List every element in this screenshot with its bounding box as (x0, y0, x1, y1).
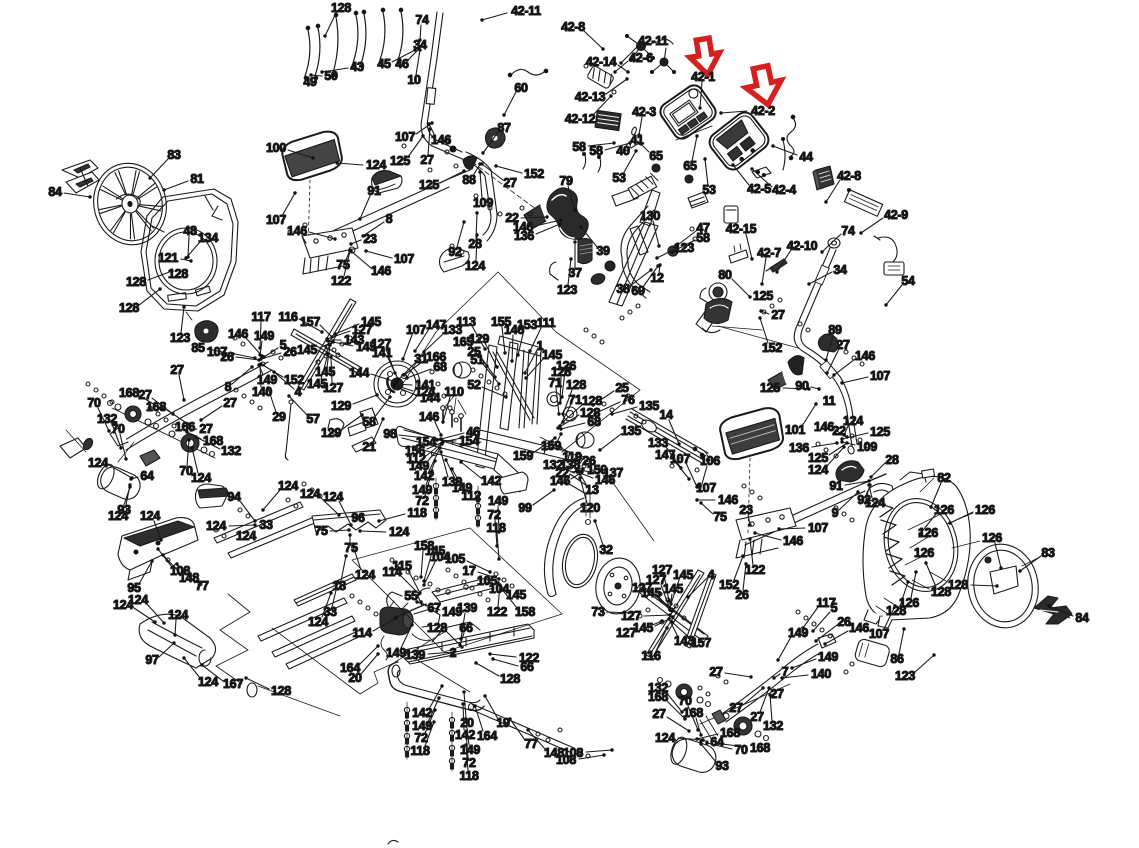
svg-text:8: 8 (386, 212, 393, 226)
svg-text:149: 149 (488, 494, 508, 508)
svg-text:132: 132 (221, 444, 241, 458)
svg-text:2: 2 (450, 646, 457, 660)
svg-text:75: 75 (336, 258, 350, 272)
svg-text:42-12: 42-12 (565, 112, 596, 126)
svg-text:140: 140 (811, 667, 831, 681)
svg-text:77: 77 (524, 737, 538, 751)
svg-text:145: 145 (673, 568, 693, 582)
svg-text:82: 82 (937, 471, 951, 485)
svg-text:124: 124 (355, 568, 375, 582)
svg-text:146: 146 (371, 264, 391, 278)
svg-text:4: 4 (295, 385, 302, 399)
svg-text:124: 124 (366, 158, 386, 172)
svg-text:42-7: 42-7 (757, 246, 781, 260)
svg-text:142: 142 (412, 706, 432, 720)
svg-text:124: 124 (308, 615, 328, 629)
svg-text:149: 149 (460, 743, 480, 757)
svg-text:27: 27 (652, 707, 666, 721)
svg-text:139: 139 (405, 648, 425, 662)
svg-text:140: 140 (252, 385, 272, 399)
svg-text:60: 60 (514, 81, 528, 95)
svg-text:114: 114 (352, 626, 372, 640)
svg-text:67: 67 (427, 601, 441, 615)
svg-text:152: 152 (524, 167, 544, 181)
svg-text:39: 39 (596, 244, 610, 258)
svg-text:122: 122 (745, 563, 765, 577)
svg-text:71: 71 (548, 376, 562, 390)
svg-text:74: 74 (415, 13, 429, 27)
svg-text:8: 8 (225, 380, 232, 394)
svg-text:14: 14 (659, 408, 673, 422)
svg-text:96: 96 (351, 511, 365, 525)
svg-text:53: 53 (702, 183, 716, 197)
svg-text:134: 134 (198, 231, 218, 245)
svg-text:52: 52 (467, 378, 481, 392)
svg-text:107: 107 (670, 452, 690, 466)
svg-text:125: 125 (390, 154, 410, 168)
svg-text:100: 100 (266, 141, 286, 155)
svg-text:76: 76 (621, 393, 635, 407)
svg-text:32: 32 (599, 543, 613, 557)
svg-text:55: 55 (404, 589, 418, 603)
svg-text:99: 99 (518, 501, 532, 515)
svg-text:110: 110 (444, 385, 464, 399)
svg-text:42-2: 42-2 (751, 104, 775, 118)
svg-text:80: 80 (718, 268, 732, 282)
svg-text:144: 144 (420, 391, 440, 405)
svg-text:10: 10 (407, 73, 421, 87)
svg-text:58: 58 (572, 140, 586, 154)
svg-text:72: 72 (462, 756, 476, 770)
svg-text:168: 168 (119, 386, 139, 400)
svg-text:42-8: 42-8 (837, 169, 861, 183)
svg-text:42-4: 42-4 (772, 183, 796, 197)
svg-text:159: 159 (513, 449, 533, 463)
svg-text:129: 129 (321, 426, 341, 440)
svg-text:68: 68 (433, 360, 447, 374)
svg-text:124: 124 (198, 675, 218, 689)
svg-text:124: 124 (843, 414, 863, 428)
svg-text:124: 124 (278, 479, 298, 493)
svg-text:124: 124 (206, 519, 226, 533)
svg-text:28: 28 (468, 237, 482, 251)
svg-text:42-9: 42-9 (884, 208, 908, 222)
svg-text:146: 146 (419, 410, 439, 424)
svg-text:42-5: 42-5 (747, 182, 771, 196)
svg-text:145: 145 (506, 588, 526, 602)
svg-text:46: 46 (395, 57, 409, 71)
svg-text:79: 79 (559, 174, 573, 188)
svg-text:58: 58 (589, 144, 603, 158)
svg-text:114: 114 (382, 565, 402, 579)
svg-text:66: 66 (459, 621, 473, 635)
svg-text:27: 27 (750, 710, 764, 724)
svg-text:42-11: 42-11 (511, 4, 541, 18)
svg-text:124: 124 (128, 593, 148, 607)
svg-text:130: 130 (640, 209, 660, 223)
svg-text:66: 66 (520, 660, 534, 674)
svg-text:64: 64 (140, 469, 154, 483)
svg-text:98: 98 (383, 427, 397, 441)
svg-text:69: 69 (631, 284, 645, 298)
svg-text:64: 64 (710, 735, 724, 749)
svg-text:74: 74 (841, 224, 855, 238)
svg-text:9: 9 (832, 506, 839, 520)
svg-text:124: 124 (168, 608, 188, 622)
svg-text:107: 107 (808, 521, 828, 535)
svg-text:48: 48 (183, 224, 197, 238)
svg-text:149: 149 (386, 646, 406, 660)
svg-text:85: 85 (191, 341, 205, 355)
svg-text:168: 168 (648, 690, 668, 704)
svg-text:128: 128 (500, 672, 520, 686)
svg-text:152: 152 (762, 341, 782, 355)
svg-text:57: 57 (306, 412, 320, 426)
svg-text:27: 27 (770, 687, 784, 701)
svg-text:91: 91 (829, 479, 843, 493)
svg-text:125: 125 (753, 289, 773, 303)
svg-text:33: 33 (259, 518, 273, 532)
svg-text:122: 122 (331, 274, 351, 288)
svg-text:112: 112 (461, 489, 481, 503)
svg-text:42-1: 42-1 (691, 70, 715, 84)
svg-text:72: 72 (487, 508, 501, 522)
svg-text:65: 65 (649, 149, 663, 163)
svg-text:123: 123 (674, 241, 694, 255)
svg-text:128: 128 (119, 301, 139, 315)
svg-text:145: 145 (641, 586, 661, 600)
svg-text:27: 27 (836, 338, 850, 352)
svg-text:124: 124 (140, 509, 160, 523)
svg-text:107: 107 (696, 481, 716, 495)
svg-text:168: 168 (683, 706, 703, 720)
svg-text:28: 28 (885, 453, 899, 467)
svg-text:124: 124 (865, 496, 885, 510)
svg-text:149: 149 (788, 626, 808, 640)
svg-text:128: 128 (427, 621, 447, 635)
svg-text:142: 142 (414, 469, 434, 483)
svg-text:125: 125 (760, 381, 780, 395)
svg-text:137: 137 (603, 466, 623, 480)
svg-text:75: 75 (713, 510, 727, 524)
svg-text:88: 88 (462, 173, 476, 187)
svg-text:126: 126 (982, 531, 1002, 545)
svg-text:91: 91 (367, 184, 381, 198)
svg-text:146: 146 (783, 534, 803, 548)
svg-text:93: 93 (715, 759, 729, 773)
svg-text:84: 84 (48, 185, 62, 199)
svg-text:77: 77 (195, 579, 209, 593)
svg-text:42-6: 42-6 (629, 51, 653, 65)
svg-text:101: 101 (785, 423, 805, 437)
svg-text:27: 27 (729, 701, 743, 715)
svg-text:4: 4 (708, 568, 715, 582)
svg-text:20: 20 (348, 671, 362, 685)
svg-text:107: 107 (394, 252, 414, 266)
svg-text:34: 34 (833, 263, 847, 277)
svg-text:136: 136 (789, 441, 809, 455)
svg-text:19: 19 (496, 716, 510, 730)
svg-text:84: 84 (1075, 611, 1089, 625)
svg-text:123: 123 (895, 669, 915, 683)
svg-text:135: 135 (639, 399, 659, 413)
svg-text:129: 129 (469, 332, 489, 346)
svg-text:116: 116 (641, 649, 661, 663)
svg-text:42-3: 42-3 (632, 105, 656, 119)
svg-text:27: 27 (420, 153, 434, 167)
svg-text:11: 11 (823, 394, 836, 408)
svg-text:40: 40 (616, 144, 630, 158)
svg-text:46: 46 (466, 425, 480, 439)
svg-text:34: 34 (413, 38, 427, 52)
svg-text:118: 118 (486, 521, 506, 535)
svg-text:132: 132 (763, 719, 783, 733)
svg-text:146: 146 (550, 474, 570, 488)
svg-text:127: 127 (323, 381, 343, 395)
svg-text:27: 27 (170, 363, 184, 377)
svg-text:166: 166 (175, 420, 195, 434)
svg-text:159: 159 (541, 439, 561, 453)
svg-text:113: 113 (456, 315, 476, 329)
svg-text:111: 111 (537, 316, 556, 330)
svg-text:70: 70 (734, 743, 748, 757)
svg-text:146: 146 (718, 493, 738, 507)
svg-text:27: 27 (503, 176, 517, 190)
svg-text:168: 168 (146, 400, 166, 414)
svg-text:43: 43 (350, 60, 364, 74)
svg-text:128: 128 (931, 585, 951, 599)
svg-text:29: 29 (272, 410, 286, 424)
svg-text:107: 107 (869, 627, 889, 641)
svg-text:49: 49 (303, 75, 317, 89)
svg-text:70: 70 (111, 422, 125, 436)
svg-text:41: 41 (630, 133, 644, 147)
svg-text:146: 146 (228, 327, 248, 341)
svg-text:116: 116 (278, 310, 298, 324)
svg-text:86: 86 (890, 652, 904, 666)
svg-text:122: 122 (487, 605, 507, 619)
svg-text:72: 72 (414, 731, 428, 745)
svg-text:126: 126 (914, 546, 934, 560)
svg-text:124: 124 (108, 509, 128, 523)
svg-text:26: 26 (283, 345, 297, 359)
svg-text:73: 73 (591, 605, 605, 619)
svg-text:124: 124 (236, 529, 256, 543)
svg-text:125: 125 (419, 178, 439, 192)
svg-text:118: 118 (459, 769, 479, 783)
svg-text:87: 87 (497, 121, 511, 135)
svg-text:42-8: 42-8 (561, 20, 585, 34)
svg-text:58: 58 (696, 231, 710, 245)
svg-text:42-10: 42-10 (787, 239, 818, 253)
svg-text:145: 145 (297, 343, 317, 357)
svg-text:128: 128 (331, 1, 351, 15)
svg-text:158: 158 (515, 605, 535, 619)
svg-text:142: 142 (455, 728, 475, 742)
svg-text:12: 12 (650, 271, 664, 285)
svg-text:97: 97 (145, 653, 159, 667)
svg-text:53: 53 (612, 171, 626, 185)
svg-text:65: 65 (683, 159, 697, 173)
svg-text:146: 146 (287, 224, 307, 238)
svg-text:124: 124 (323, 490, 343, 504)
svg-text:109: 109 (473, 196, 493, 210)
svg-text:126: 126 (975, 503, 995, 517)
svg-text:129: 129 (331, 399, 351, 413)
svg-text:128: 128 (948, 578, 968, 592)
svg-text:146: 146 (855, 349, 875, 363)
svg-text:21: 21 (362, 440, 376, 454)
svg-text:23: 23 (363, 232, 377, 246)
svg-text:126: 126 (918, 526, 938, 540)
svg-text:146: 146 (814, 420, 834, 434)
svg-text:27: 27 (223, 396, 237, 410)
svg-text:107: 107 (406, 323, 426, 337)
svg-text:128: 128 (886, 604, 906, 618)
svg-text:124: 124 (465, 259, 485, 273)
svg-text:81: 81 (190, 172, 204, 186)
svg-text:145: 145 (663, 582, 683, 596)
svg-text:31: 31 (414, 352, 428, 366)
svg-text:149: 149 (254, 329, 274, 343)
svg-text:167: 167 (223, 677, 243, 691)
svg-text:144: 144 (349, 366, 369, 380)
svg-text:124: 124 (300, 487, 320, 501)
svg-text:123: 123 (170, 331, 190, 345)
svg-text:83: 83 (1041, 546, 1055, 560)
svg-text:125: 125 (870, 425, 890, 439)
svg-text:118: 118 (410, 744, 430, 758)
svg-text:92: 92 (448, 245, 462, 259)
svg-text:58: 58 (362, 415, 376, 429)
svg-text:108: 108 (563, 746, 583, 760)
svg-text:42-11: 42-11 (638, 34, 668, 48)
svg-text:27: 27 (709, 665, 723, 679)
svg-text:121: 121 (158, 251, 178, 265)
svg-text:127: 127 (616, 626, 636, 640)
svg-text:124: 124 (191, 471, 211, 485)
svg-text:126: 126 (934, 503, 954, 517)
svg-text:90: 90 (795, 379, 809, 393)
svg-text:124: 124 (808, 463, 828, 477)
svg-text:146: 146 (431, 133, 451, 147)
svg-text:128: 128 (126, 275, 146, 289)
svg-text:83: 83 (167, 148, 181, 162)
svg-text:139: 139 (457, 601, 477, 615)
svg-text:123: 123 (557, 283, 577, 297)
svg-text:120: 120 (580, 501, 600, 515)
svg-text:145: 145 (633, 621, 653, 635)
svg-text:107: 107 (870, 369, 890, 383)
svg-text:153: 153 (517, 318, 537, 332)
svg-text:146: 146 (849, 621, 869, 635)
svg-text:26: 26 (735, 588, 749, 602)
svg-text:75: 75 (314, 524, 328, 538)
svg-text:71: 71 (568, 393, 582, 407)
svg-text:107: 107 (266, 213, 286, 227)
svg-text:118: 118 (407, 506, 427, 520)
svg-text:18: 18 (332, 579, 346, 593)
svg-text:17: 17 (462, 564, 476, 578)
svg-text:135: 135 (621, 424, 641, 438)
svg-text:7: 7 (782, 665, 789, 679)
svg-text:107: 107 (207, 345, 227, 359)
svg-text:75: 75 (344, 541, 358, 555)
svg-text:109: 109 (857, 440, 877, 454)
svg-text:70: 70 (87, 396, 101, 410)
svg-text:128: 128 (580, 406, 600, 420)
svg-text:124: 124 (655, 731, 675, 745)
svg-text:124: 124 (88, 456, 108, 470)
svg-text:44: 44 (799, 150, 813, 164)
svg-text:136: 136 (514, 229, 534, 243)
svg-text:149: 149 (818, 650, 838, 664)
svg-text:141: 141 (372, 346, 392, 360)
svg-text:27: 27 (771, 308, 785, 322)
svg-text:51: 51 (470, 353, 484, 367)
svg-text:154: 154 (416, 435, 436, 449)
svg-text:168: 168 (750, 741, 770, 755)
svg-text:23: 23 (739, 503, 753, 517)
svg-text:42-15: 42-15 (726, 222, 757, 236)
svg-text:142: 142 (481, 474, 501, 488)
svg-text:45: 45 (377, 57, 391, 71)
svg-text:54: 54 (901, 274, 915, 288)
svg-text:50: 50 (324, 69, 338, 83)
svg-text:5: 5 (831, 601, 838, 615)
svg-text:42-14: 42-14 (586, 55, 617, 69)
svg-text:124: 124 (389, 525, 409, 539)
svg-text:117: 117 (251, 310, 271, 324)
svg-text:164: 164 (477, 729, 497, 743)
svg-text:37: 37 (568, 266, 582, 280)
svg-text:38: 38 (616, 282, 630, 296)
svg-text:106: 106 (700, 454, 720, 468)
svg-text:128: 128 (271, 684, 291, 698)
svg-text:94: 94 (227, 490, 241, 504)
svg-text:128: 128 (566, 378, 586, 392)
svg-text:157: 157 (300, 315, 320, 329)
svg-text:89: 89 (828, 323, 842, 337)
svg-text:128: 128 (168, 267, 188, 281)
svg-text:107: 107 (395, 130, 415, 144)
svg-text:42-13: 42-13 (575, 90, 606, 104)
svg-text:157: 157 (691, 636, 711, 650)
